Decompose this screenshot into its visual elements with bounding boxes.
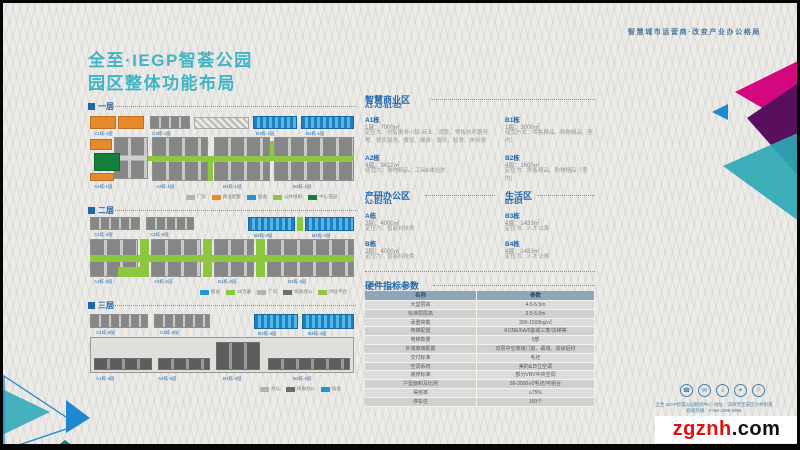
table-header-cell: 名称 [365, 291, 477, 301]
legend-swatch [308, 195, 317, 200]
watermark: zgznh.com [655, 416, 798, 443]
green-corridor [118, 267, 148, 277]
table-row: 装修标准部分VRV中央空调 [365, 371, 595, 380]
block-label: C1栋-2层 [94, 232, 113, 238]
green-corridor [148, 156, 354, 161]
section-code-office: A2-B2-B1 [365, 200, 392, 206]
floor3-marker-icon [88, 302, 95, 309]
block-label: A2栋-3层 [158, 376, 177, 382]
section-code-business: A1-A2-B1-B2 [365, 104, 402, 110]
block-label: C1栋-3层 [96, 330, 115, 336]
table-row: 外墙玻璃配置双层中空玻璃门窗、幕墙、高级铝材 [365, 345, 595, 354]
section-divider [537, 195, 595, 196]
legend-swatch [321, 387, 330, 392]
floor3-plan: C1栋-3层 C2栋-3层 B3栋-3层 B4栋-3层 A1栋-3层 A2栋-3… [88, 310, 356, 400]
garden-block [94, 153, 120, 171]
building-desc: 定位为：智能科技类 [365, 226, 495, 234]
table-row: 交付标准毛坯 [365, 354, 595, 363]
building-block [268, 358, 350, 370]
building-block [90, 314, 148, 328]
legend-swatch [257, 290, 266, 295]
legend-item: 公共绿廊 [273, 194, 302, 200]
green-corridor [270, 141, 274, 161]
legend-item: 宿舍 [247, 194, 267, 200]
plaza-area [194, 117, 249, 129]
floor1-legend: 厂房 商业配套 宿舍 公共绿廊 中心花园 [186, 194, 337, 200]
section-divider [425, 195, 495, 196]
legend-swatch [260, 387, 269, 392]
building-block [216, 342, 260, 370]
legend-item: 宿舍 [200, 289, 220, 295]
section-code-living: B3-B4 [505, 200, 522, 206]
floor2-legend: 宿舍 2F连廊 厂房 研发办公 绿化平台 [200, 289, 347, 295]
legend-swatch [247, 195, 256, 200]
building-block [150, 116, 190, 129]
dorm-block [253, 116, 297, 129]
legend-swatch [273, 195, 282, 200]
green-corridor [90, 255, 354, 262]
page-title-line1: 全至·IEGP智荟公园 [88, 46, 253, 71]
watermark-red-text: zgznh [673, 418, 732, 441]
building-desc: 定位为：零售精品、购物精品（室内） [505, 168, 595, 183]
legend-swatch [212, 195, 221, 200]
floor3-divider [110, 305, 356, 306]
legend-item: 商业配套 [212, 194, 241, 200]
legend-item: 厂房 [257, 289, 277, 295]
legend-item: 2F连廊 [226, 289, 251, 295]
building-block [90, 116, 116, 129]
block-label: C1栋-1层 [94, 131, 113, 137]
table-row: 标准层层高3.5-5.5m [365, 310, 595, 319]
block-label: C2栋-2层 [150, 232, 169, 238]
legend-swatch [318, 290, 327, 295]
table-row: 大堂层高4.5-5.5m [365, 301, 595, 310]
floor3-legend: 办公 研发办公 宿舍 [260, 386, 341, 392]
mail-icon: ✉ [698, 384, 711, 397]
contact-icons: ☎ ✉ ⌂ ✦ ⚐ [680, 384, 765, 397]
floor1-plan: C1栋-1层 C2栋-1层 B3栋-1层 B4栋-1层 A1栋-1层 A2栋-1… [88, 111, 356, 205]
legend-item: 中心花园 [308, 194, 337, 200]
dorm-block [302, 314, 354, 329]
table-row: 户型面积及比例66-3000㎡/毛坯/可组合 [365, 380, 595, 389]
section-divider [433, 285, 595, 286]
block-label: A1栋-2层 [94, 279, 113, 285]
block-label: C2栋-3层 [160, 330, 179, 336]
section-divider [430, 99, 595, 100]
building-block [94, 358, 152, 370]
block-label: A2栋-2层 [154, 279, 173, 285]
slogan-text: 智慧城市运营商·改变产业办公格局 [628, 27, 761, 37]
block-label: B1栋-2层 [218, 279, 237, 285]
table-row: 停车位100个 [365, 398, 595, 407]
block-label: A1栋-1层 [94, 184, 113, 190]
phone-icon: ☎ [680, 384, 693, 397]
flag-icon: ⚐ [752, 384, 765, 397]
building-block [118, 116, 144, 129]
building-block [158, 358, 210, 370]
building-block [90, 139, 112, 150]
block-label: B2栋-2层 [288, 279, 307, 285]
building-desc: 经营方式：零售精品、购物精品（室内） [505, 130, 595, 145]
green-corridor [208, 156, 213, 181]
home-icon: ⌂ [716, 384, 729, 397]
floor2-plan: C1栋-2层 C2栋-2层 B3栋-2层 B4栋-2层 A1栋-2层 A2栋-2… [88, 215, 356, 303]
legend-swatch [186, 195, 195, 200]
table-header-row: 名称 参数 [365, 291, 595, 301]
table-row: 承重荷载200-1500kg/㎡ [365, 319, 595, 328]
floor1-divider [110, 106, 356, 107]
building-desc: 定位为：人才公寓 [505, 254, 595, 262]
block-label: B1栋-1层 [223, 184, 242, 190]
green-corridor [297, 217, 303, 231]
building-block [90, 173, 114, 181]
corner-decoration-bottom-left [0, 370, 110, 450]
block-label: B2栋-1层 [293, 184, 312, 190]
dorm-block [254, 314, 298, 329]
legend-item: 宿舍 [321, 386, 341, 392]
contact-line2: 招商热线：0755-2988 8888 [630, 408, 798, 414]
table-row: 电梯配置KONE/6A/5客或三菱/货梯等 [365, 327, 595, 336]
building-block [154, 314, 210, 328]
corner-decoration-top-right [695, 60, 800, 240]
building-block [146, 217, 194, 230]
table-header-cell: 参数 [477, 291, 595, 301]
legend-swatch [226, 290, 235, 295]
legend-swatch [286, 387, 295, 392]
building-block [90, 217, 140, 230]
panel-divider [365, 271, 595, 272]
watermark-black-text: .com [732, 418, 781, 441]
dorm-block [301, 116, 354, 129]
building-desc: 定位为：创智服务小镇·商业、观景、零售技术服务等、便民服务、餐饮、健身、娱乐、轻… [365, 130, 497, 145]
table-row: 电梯数量5部 [365, 336, 595, 345]
building-desc: 经营为：购物精品、工具&体验类 [365, 168, 497, 176]
legend-item: 研发办公 [286, 386, 315, 392]
table-row: 得房率≥75% [365, 389, 595, 398]
legend-item: 研发办公 [283, 289, 312, 295]
floor2-divider [110, 210, 356, 211]
page-title-line2: 园区整体功能布局 [88, 69, 236, 94]
slide: 智慧城市运营商·改变产业办公格局 全至·IEGP智荟公园 园区整体功能布局 一层… [0, 0, 800, 450]
spec-table: 名称 参数 大堂层高4.5-5.5m 标准层层高3.5-5.5m 承重荷载200… [365, 291, 595, 407]
legend-swatch [283, 290, 292, 295]
floor2-marker-icon [88, 207, 95, 214]
star-icon: ✦ [734, 384, 747, 397]
dorm-block [305, 217, 354, 231]
legend-item: 厂房 [186, 194, 206, 200]
dorm-block [248, 217, 295, 231]
legend-item: 办公 [260, 386, 280, 392]
table-row: 空调系统美的&日立空调 [365, 363, 595, 372]
legend-swatch [200, 290, 209, 295]
block-label: A2栋-1层 [156, 184, 175, 190]
floor1-marker-icon [88, 103, 95, 110]
legend-item: 绿化平台 [318, 289, 347, 295]
block-label: B1栋-3层 [223, 376, 242, 382]
building-desc: 定位为：智能科技类 [365, 254, 495, 262]
building-desc: 定位为：人才公寓 [505, 226, 595, 234]
block-label: B2栋-3层 [293, 376, 312, 382]
